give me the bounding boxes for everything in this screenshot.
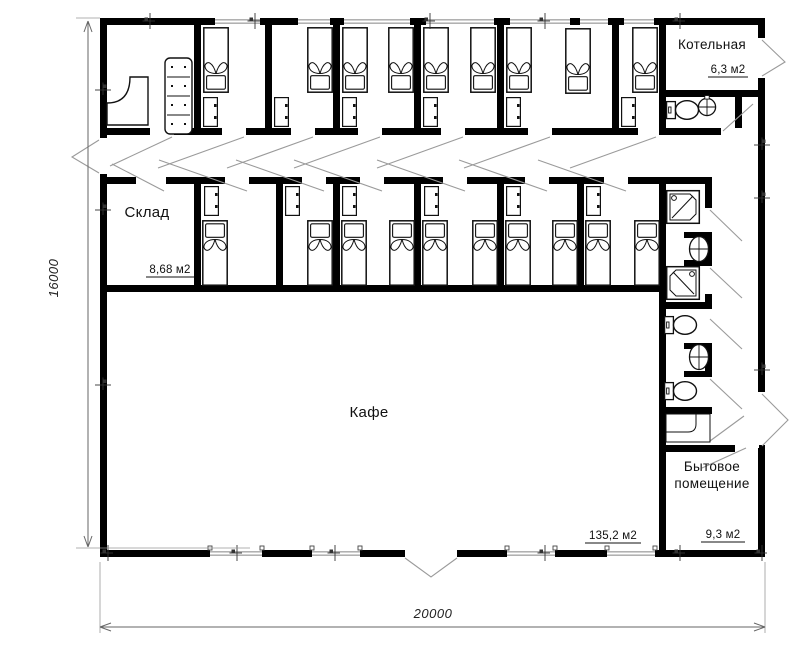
window — [507, 552, 555, 555]
room-label-utility-line2: помещение — [674, 476, 749, 491]
window — [580, 18, 608, 25]
bed-icon — [390, 221, 414, 285]
floor-plan-svg: 16000 20000 Котельная 6,3 м2 Склад 8,68 … — [0, 0, 800, 654]
beds-middle-row — [203, 221, 659, 285]
wardrobe-icon — [286, 187, 300, 216]
reception-desk-icon — [107, 77, 148, 125]
bed-icon — [507, 28, 531, 92]
area-label-cafe: 135,2 м2 — [589, 530, 637, 542]
kitchen-counter-icon — [666, 414, 710, 442]
bed-icon — [633, 28, 657, 92]
bed-icon — [204, 28, 228, 92]
area-label-utility: 9,3 м2 — [706, 529, 741, 541]
window — [215, 18, 260, 25]
bed-icon — [308, 28, 332, 92]
bed-icon — [342, 221, 366, 285]
window — [298, 18, 330, 25]
reception-room — [107, 58, 192, 134]
toilet-icon — [667, 101, 699, 120]
bed-icon — [423, 221, 447, 285]
oval-sink-icon — [690, 237, 709, 262]
bed-icon — [389, 28, 413, 92]
wardrobe-icon — [425, 187, 439, 216]
dimension-length-label: 20000 — [413, 606, 453, 621]
shower-icon — [667, 191, 700, 224]
dimension-depth-label: 16000 — [46, 258, 61, 297]
wardrobe-icon — [343, 98, 357, 127]
area-label-storage: 8,68 м2 — [149, 264, 190, 276]
round-sink-icon — [698, 96, 715, 116]
sanitary-fixtures — [665, 96, 716, 443]
room-label-cafe: Кафе — [350, 404, 389, 421]
bed-icon — [424, 28, 448, 92]
wardrobe-icon — [343, 187, 357, 216]
shower-icon — [667, 267, 700, 300]
oval-sink-icon — [690, 345, 709, 370]
window — [426, 18, 494, 25]
window — [624, 18, 654, 25]
bed-icon — [506, 221, 530, 285]
bed-icon — [553, 221, 577, 285]
wardrobe-icon — [507, 187, 521, 216]
wardrobe-icon — [275, 98, 289, 127]
wardrobe-icon — [204, 98, 218, 127]
area-label-boiler: 6,3 м2 — [711, 64, 746, 76]
toilet-icon — [665, 316, 697, 335]
bed-icon — [471, 28, 495, 92]
window — [344, 18, 410, 25]
toilet-icon — [665, 382, 697, 401]
dimension-bottom: 20000 — [100, 562, 765, 633]
wardrobe-icon — [587, 187, 601, 216]
wardrobe-icon — [507, 98, 521, 127]
bed-icon — [566, 29, 590, 93]
room-label-storage: Склад — [125, 204, 170, 221]
window — [607, 552, 655, 555]
window — [210, 552, 262, 555]
sofa-icon — [165, 58, 192, 134]
wardrobe-icon — [424, 98, 438, 127]
window — [312, 552, 360, 555]
bed-icon — [343, 28, 367, 92]
bed-icon — [635, 221, 659, 285]
wardrobe-icon — [622, 98, 636, 127]
bed-icon — [473, 221, 497, 285]
room-label-boiler: Котельная — [678, 37, 746, 52]
bed-icon — [203, 221, 227, 285]
floor-plan-page: 16000 20000 Котельная 6,3 м2 Склад 8,68 … — [0, 0, 800, 654]
bed-icon — [586, 221, 610, 285]
bed-icon — [308, 221, 332, 285]
room-label-utility-line1: Бытовое — [684, 459, 740, 474]
wardrobe-icon — [205, 187, 219, 216]
